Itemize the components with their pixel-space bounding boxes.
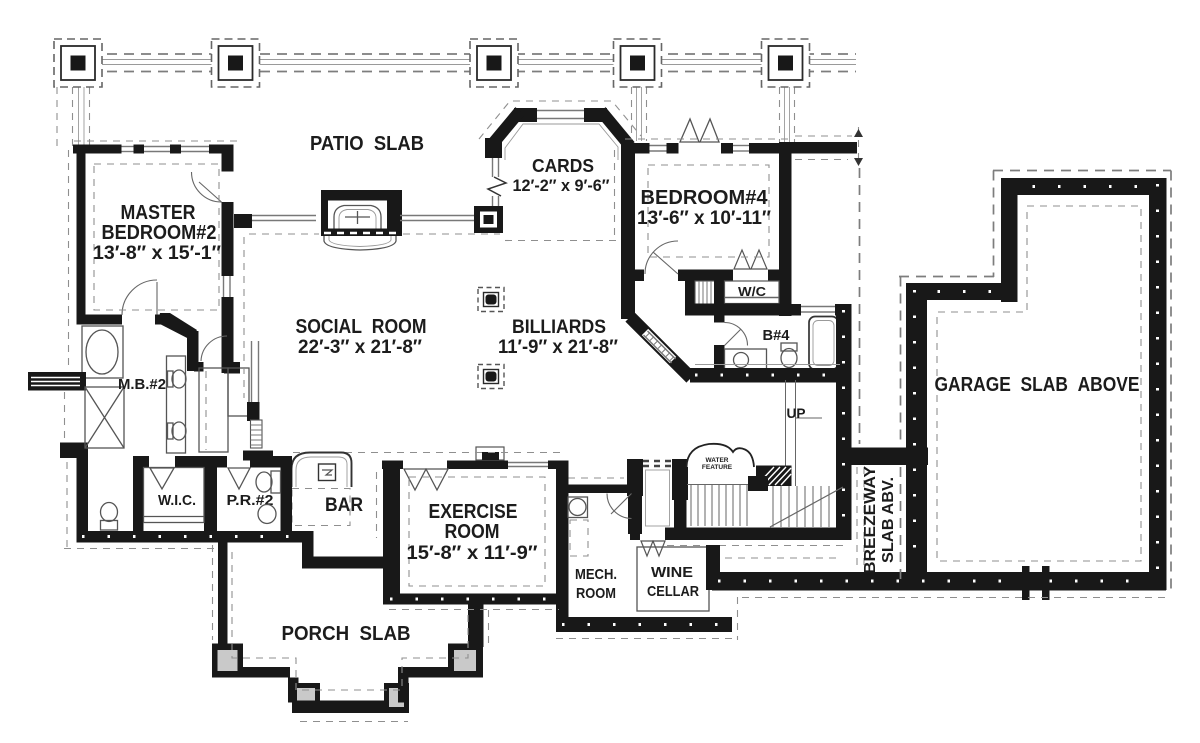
- svg-text:PATIO SLAB: PATIO SLAB: [310, 133, 424, 155]
- svg-text:SLAB ABV.: SLAB ABV.: [880, 477, 897, 563]
- svg-text:MECH.: MECH.: [575, 566, 617, 583]
- svg-text:BILLIARDS: BILLIARDS: [512, 317, 606, 338]
- svg-text:GARAGE SLAB ABOVE: GARAGE SLAB ABOVE: [935, 374, 1140, 396]
- svg-text:BAR: BAR: [325, 495, 363, 516]
- svg-text:PORCH SLAB: PORCH SLAB: [282, 623, 411, 645]
- svg-text:15′-8″ x 11′-9″: 15′-8″ x 11′-9″: [407, 543, 538, 564]
- svg-text:WINE: WINE: [651, 564, 693, 581]
- svg-text:12′-2″ x 9′-6″: 12′-2″ x 9′-6″: [513, 176, 610, 195]
- svg-text:11′-9″ x 21′-8″: 11′-9″ x 21′-8″: [498, 337, 618, 358]
- svg-text:BEDROOM#4: BEDROOM#4: [641, 187, 769, 209]
- svg-text:ROOM: ROOM: [445, 521, 500, 543]
- svg-text:CARDS: CARDS: [532, 156, 594, 176]
- svg-text:SOCIAL ROOM: SOCIAL ROOM: [296, 316, 427, 338]
- svg-text:FEATURE: FEATURE: [702, 464, 733, 471]
- svg-text:CELLAR: CELLAR: [647, 583, 699, 600]
- svg-text:B#4: B#4: [763, 327, 791, 344]
- svg-text:ROOM: ROOM: [576, 585, 616, 602]
- svg-text:W/C: W/C: [738, 284, 767, 299]
- svg-text:MASTER: MASTER: [121, 202, 196, 224]
- svg-text:13′-8″ x 15′-1″: 13′-8″ x 15′-1″: [93, 243, 221, 264]
- svg-text:M.B.#2: M.B.#2: [118, 376, 166, 393]
- svg-text:P.R.#2: P.R.#2: [227, 492, 274, 509]
- svg-text:BEDROOM#2: BEDROOM#2: [102, 222, 217, 244]
- svg-text:22′-3″ x 21′-8″: 22′-3″ x 21′-8″: [298, 337, 422, 358]
- svg-text:W.I.C.: W.I.C.: [158, 492, 196, 509]
- svg-text:BREEZEWAY: BREEZEWAY: [862, 466, 879, 574]
- svg-text:13′-6″ x 10′-11″: 13′-6″ x 10′-11″: [637, 208, 771, 229]
- svg-text:UP: UP: [787, 405, 806, 421]
- svg-text:EXERCISE: EXERCISE: [429, 501, 518, 523]
- svg-text:WATER: WATER: [706, 457, 729, 464]
